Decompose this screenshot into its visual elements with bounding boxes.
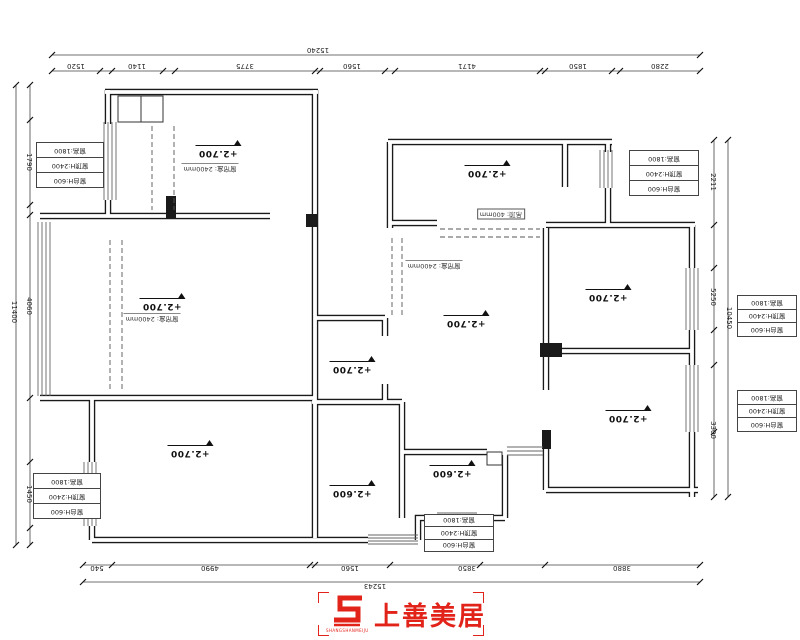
dimension-text: 4171 [458, 62, 476, 70]
dimension-text: 11400 [10, 301, 18, 323]
floor-plan-page: +2.700+2.700+2.700+2.700+2.600+2.700+2.7… [0, 0, 800, 640]
elevation-marker-icon [624, 284, 632, 290]
elevation-marker-icon [178, 293, 186, 299]
logo-mark-icon [326, 594, 368, 628]
elevation-label: +2.700 [167, 445, 212, 459]
dimension-text: 10450 [725, 307, 733, 329]
window-schedule-row: 窗高:1800 [425, 515, 493, 527]
floor-plan-drawing [0, 0, 800, 640]
elevation-marker-icon [368, 480, 376, 486]
elevation-label: +2.700 [443, 315, 488, 329]
window-schedule-row: 窗高:1800 [37, 143, 103, 158]
elevation-marker-icon [206, 440, 214, 446]
window-schedule-row: 窗台H:600 [738, 323, 796, 336]
elevation-label: +2.700 [139, 298, 184, 312]
dimension-text: 3850 [458, 564, 476, 572]
window-schedule-row: 窗台H:600 [425, 540, 493, 551]
window-schedule-row: 窗顶H:2400 [630, 166, 698, 181]
dimension-text: 15243 [364, 582, 386, 590]
window-schedule-row: 窗高:1800 [630, 151, 698, 166]
dimension-text: 3300 [709, 421, 717, 439]
ceiling-note: 窗帘盒: 2400mm [406, 260, 463, 270]
elevation-marker-icon [644, 405, 652, 411]
dimension-text: 4060 [25, 297, 33, 315]
window-schedule-box: 窗台H:600窗顶H:2400窗高:1800 [737, 390, 797, 432]
window-schedule-row: 窗顶H:2400 [738, 310, 796, 324]
dimension-text: 3880 [613, 564, 631, 572]
dimension-text: 15240 [307, 46, 329, 54]
window-schedule-row: 窗高:1800 [738, 296, 796, 310]
dimension-text: 2211 [709, 173, 717, 191]
elevation-label: +2.600 [329, 485, 374, 499]
elevation-marker-icon [482, 310, 490, 316]
elevation-label: +2.700 [605, 410, 650, 424]
elevation-label: +2.700 [585, 289, 630, 303]
logo: SHANGSHANMEIJU 上善美居 [318, 590, 484, 636]
window-schedule-row: 窗台H:600 [34, 504, 100, 518]
dimension-text: 1140 [128, 62, 146, 70]
logo-caption: SHANGSHANMEIJU [326, 628, 368, 633]
elevation-label: +2.700 [329, 361, 374, 375]
logo-brand: 上善美居 [374, 596, 486, 633]
dimension-text: 4990 [201, 564, 219, 572]
elevation-label: +2.700 [464, 165, 509, 179]
elevation-marker-icon [368, 356, 376, 362]
elevation-marker-icon [234, 140, 242, 146]
dimension-text: 1520 [67, 62, 85, 70]
ceiling-note: 窗帘盒: 2400mm [124, 313, 181, 323]
dimension-text: 5250 [709, 288, 717, 306]
window-schedule-row: 窗高:1800 [738, 391, 796, 405]
dimension-text: 1450 [25, 485, 33, 503]
ceiling-note: 吊顶: 400mm [477, 209, 525, 220]
window-schedule-box: 窗台H:600窗顶H:2400窗高:1800 [36, 142, 104, 188]
dimension-text: 1560 [341, 564, 359, 572]
window-schedule-row: 窗顶H:2400 [37, 158, 103, 173]
window-schedule-row: 窗台H:600 [630, 181, 698, 195]
window-schedule-row: 窗顶H:2400 [34, 489, 100, 504]
window-schedule-row: 窗台H:600 [37, 173, 103, 187]
window-schedule-row: 窗台H:600 [738, 418, 796, 431]
dimension-text: 540 [90, 564, 103, 572]
dimension-text: 1790 [25, 153, 33, 171]
window-schedule-row: 窗高:1800 [34, 474, 100, 489]
window-schedule-box: 窗台H:600窗顶H:2400窗高:1800 [629, 150, 699, 196]
dimension-text: 1560 [343, 62, 361, 70]
dimension-text: 2280 [651, 62, 669, 70]
ceiling-note: 窗帘盒: 2400mm [182, 163, 239, 173]
window-schedule-row: 窗顶H:2400 [738, 405, 796, 419]
elevation-label: +2.700 [195, 145, 240, 159]
window-schedule-box: 窗台H:600窗顶H:2400窗高:1800 [424, 514, 494, 552]
dimension-text: 3775 [236, 62, 254, 70]
elevation-label: +2.600 [429, 465, 474, 479]
window-schedule-box: 窗台H:600窗顶H:2400窗高:1800 [737, 295, 797, 337]
elevation-marker-icon [503, 160, 511, 166]
dimension-text: 1850 [569, 62, 587, 70]
window-schedule-box: 窗台H:600窗顶H:2400窗高:1800 [33, 473, 101, 519]
elevation-marker-icon [468, 460, 476, 466]
window-schedule-row: 窗顶H:2400 [425, 527, 493, 539]
